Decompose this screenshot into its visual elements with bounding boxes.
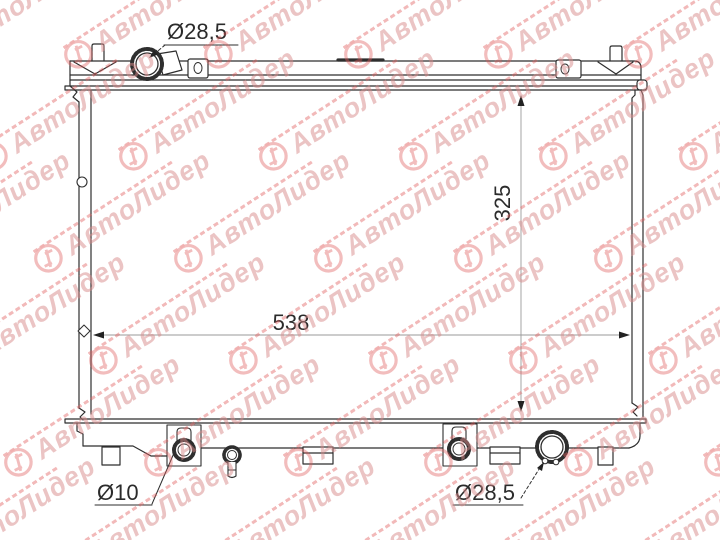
mount-pin-right	[610, 46, 622, 61]
radiator-diagram: 538 325 Ø28,5 Ø10 Ø28,5	[0, 0, 720, 540]
radiator-drawing-canvas: 538 325 Ø28,5 Ø10 Ø28,5 АвтоЛидерАвтоЛид…	[0, 0, 720, 540]
bottom-bracket-left	[102, 447, 120, 465]
dim-core-height: 325	[490, 95, 525, 412]
bottom-tank	[65, 419, 646, 478]
tab-hole-right	[556, 60, 581, 78]
outlet-pipe	[537, 432, 567, 465]
side-ring	[77, 177, 87, 187]
top-tank	[65, 44, 647, 90]
clip-tab-2	[490, 447, 520, 464]
clip-tab-1	[303, 447, 333, 464]
label-outlet: Ø28,5	[453, 462, 544, 505]
label-filler-neck: Ø28,5	[149, 19, 238, 58]
v-mark-right	[598, 62, 633, 74]
plug-housing-2	[443, 424, 477, 466]
drain-cock	[224, 447, 240, 478]
drain-plug	[167, 425, 201, 466]
side-channel-right	[632, 90, 643, 417]
v-mark-left	[74, 62, 116, 74]
side-channel-left	[70, 86, 91, 420]
dim-core-width: 538	[93, 310, 630, 339]
filler-neck-diameter-label: Ø28,5	[167, 19, 227, 44]
outlet-diameter-label: Ø28,5	[455, 480, 515, 505]
dim-core-height-label: 325	[490, 185, 515, 222]
bottom-bracket-right	[598, 447, 613, 465]
tab-hole-left	[188, 59, 208, 78]
dim-core-width-label: 538	[273, 310, 310, 335]
top-right-lug	[637, 80, 647, 90]
mount-pin-left	[92, 44, 104, 61]
side-diamond	[78, 325, 90, 337]
drain-plug-diameter-label: Ø10	[97, 480, 139, 505]
